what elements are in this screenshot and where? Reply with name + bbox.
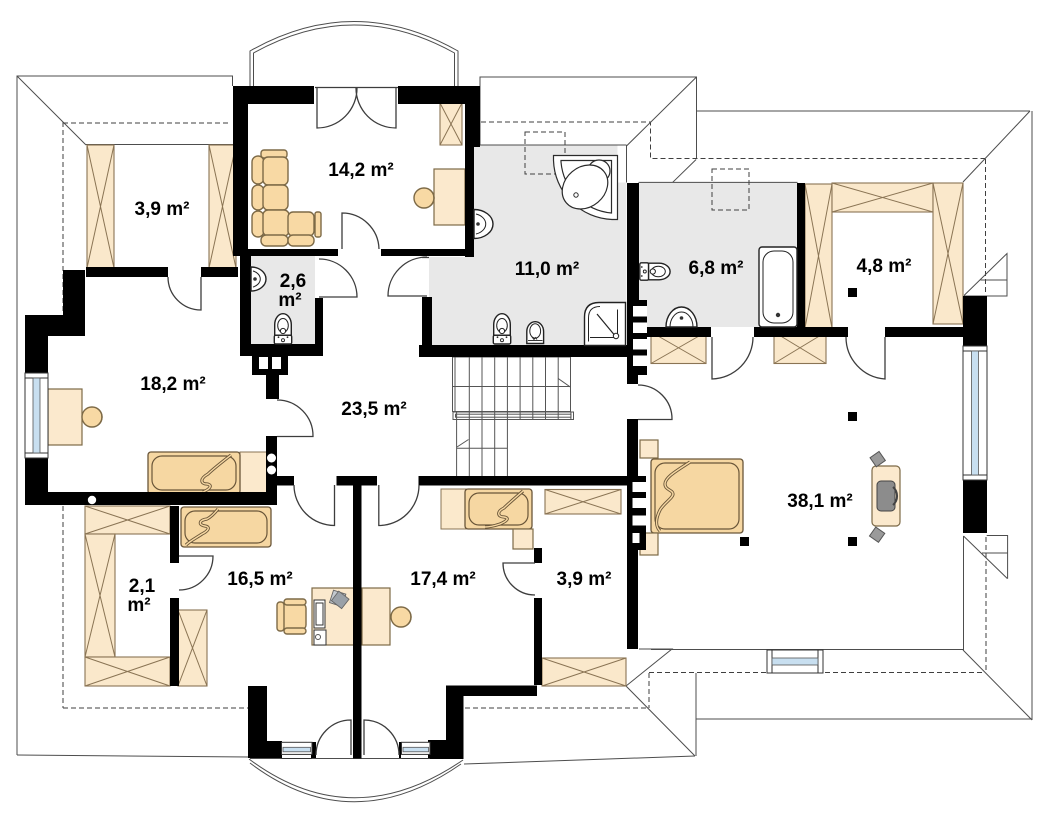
svg-text:m²: m²	[278, 290, 301, 311]
svg-text:38,1 m²: 38,1 m²	[787, 491, 852, 512]
svg-text:17,4 m²: 17,4 m²	[410, 569, 475, 590]
svg-text:23,5 m²: 23,5 m²	[341, 399, 406, 420]
svg-text:18,2 m²: 18,2 m²	[140, 374, 205, 395]
svg-text:6,8 m²: 6,8 m²	[689, 258, 744, 279]
svg-text:2,1: 2,1	[129, 576, 156, 597]
svg-text:2,6: 2,6	[280, 271, 306, 292]
svg-text:m²: m²	[127, 595, 150, 616]
svg-text:11,0 m²: 11,0 m²	[515, 259, 579, 280]
svg-text:14,2 m²: 14,2 m²	[328, 160, 393, 181]
svg-text:3,9 m²: 3,9 m²	[557, 569, 612, 590]
svg-text:16,5 m²: 16,5 m²	[227, 569, 292, 590]
svg-text:4,8 m²: 4,8 m²	[857, 256, 912, 277]
svg-text:3,9 m²: 3,9 m²	[135, 199, 190, 220]
